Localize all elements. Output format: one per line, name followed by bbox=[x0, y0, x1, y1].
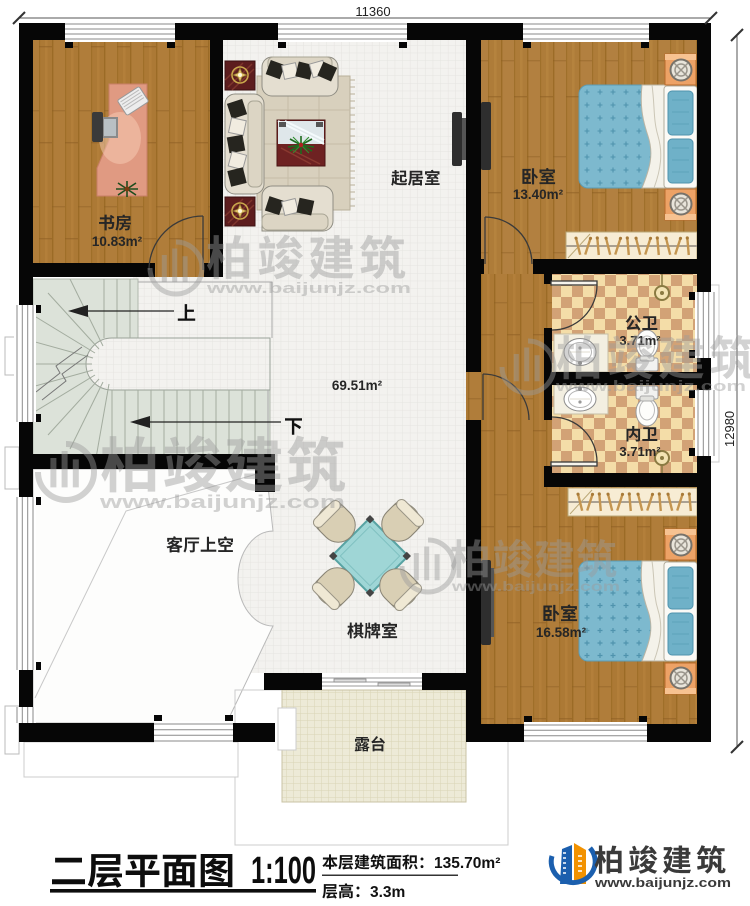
svg-text:www.baijunjz.com: www.baijunjz.com bbox=[594, 875, 731, 890]
svg-text:135.70m²: 135.70m² bbox=[434, 855, 500, 872]
svg-text:3.3m: 3.3m bbox=[370, 884, 405, 901]
svg-text:11360: 11360 bbox=[355, 4, 390, 19]
svg-text:www.baijunjz.com: www.baijunjz.com bbox=[205, 280, 411, 297]
svg-text:3.71m²: 3.71m² bbox=[619, 444, 661, 459]
svg-text:www.baijunjz.com: www.baijunjz.com bbox=[451, 578, 620, 594]
svg-text:10.83m²: 10.83m² bbox=[92, 234, 143, 249]
svg-text:1:100: 1:100 bbox=[251, 850, 316, 892]
svg-text:www.baijunjz.com: www.baijunjz.com bbox=[555, 378, 746, 395]
svg-text:69.51m²: 69.51m² bbox=[332, 378, 383, 393]
svg-text:13.40m²: 13.40m² bbox=[513, 187, 564, 202]
svg-text:12980: 12980 bbox=[722, 411, 737, 447]
svg-text:16.58m²: 16.58m² bbox=[536, 625, 587, 640]
svg-text:www.baijunjz.com: www.baijunjz.com bbox=[98, 492, 345, 512]
